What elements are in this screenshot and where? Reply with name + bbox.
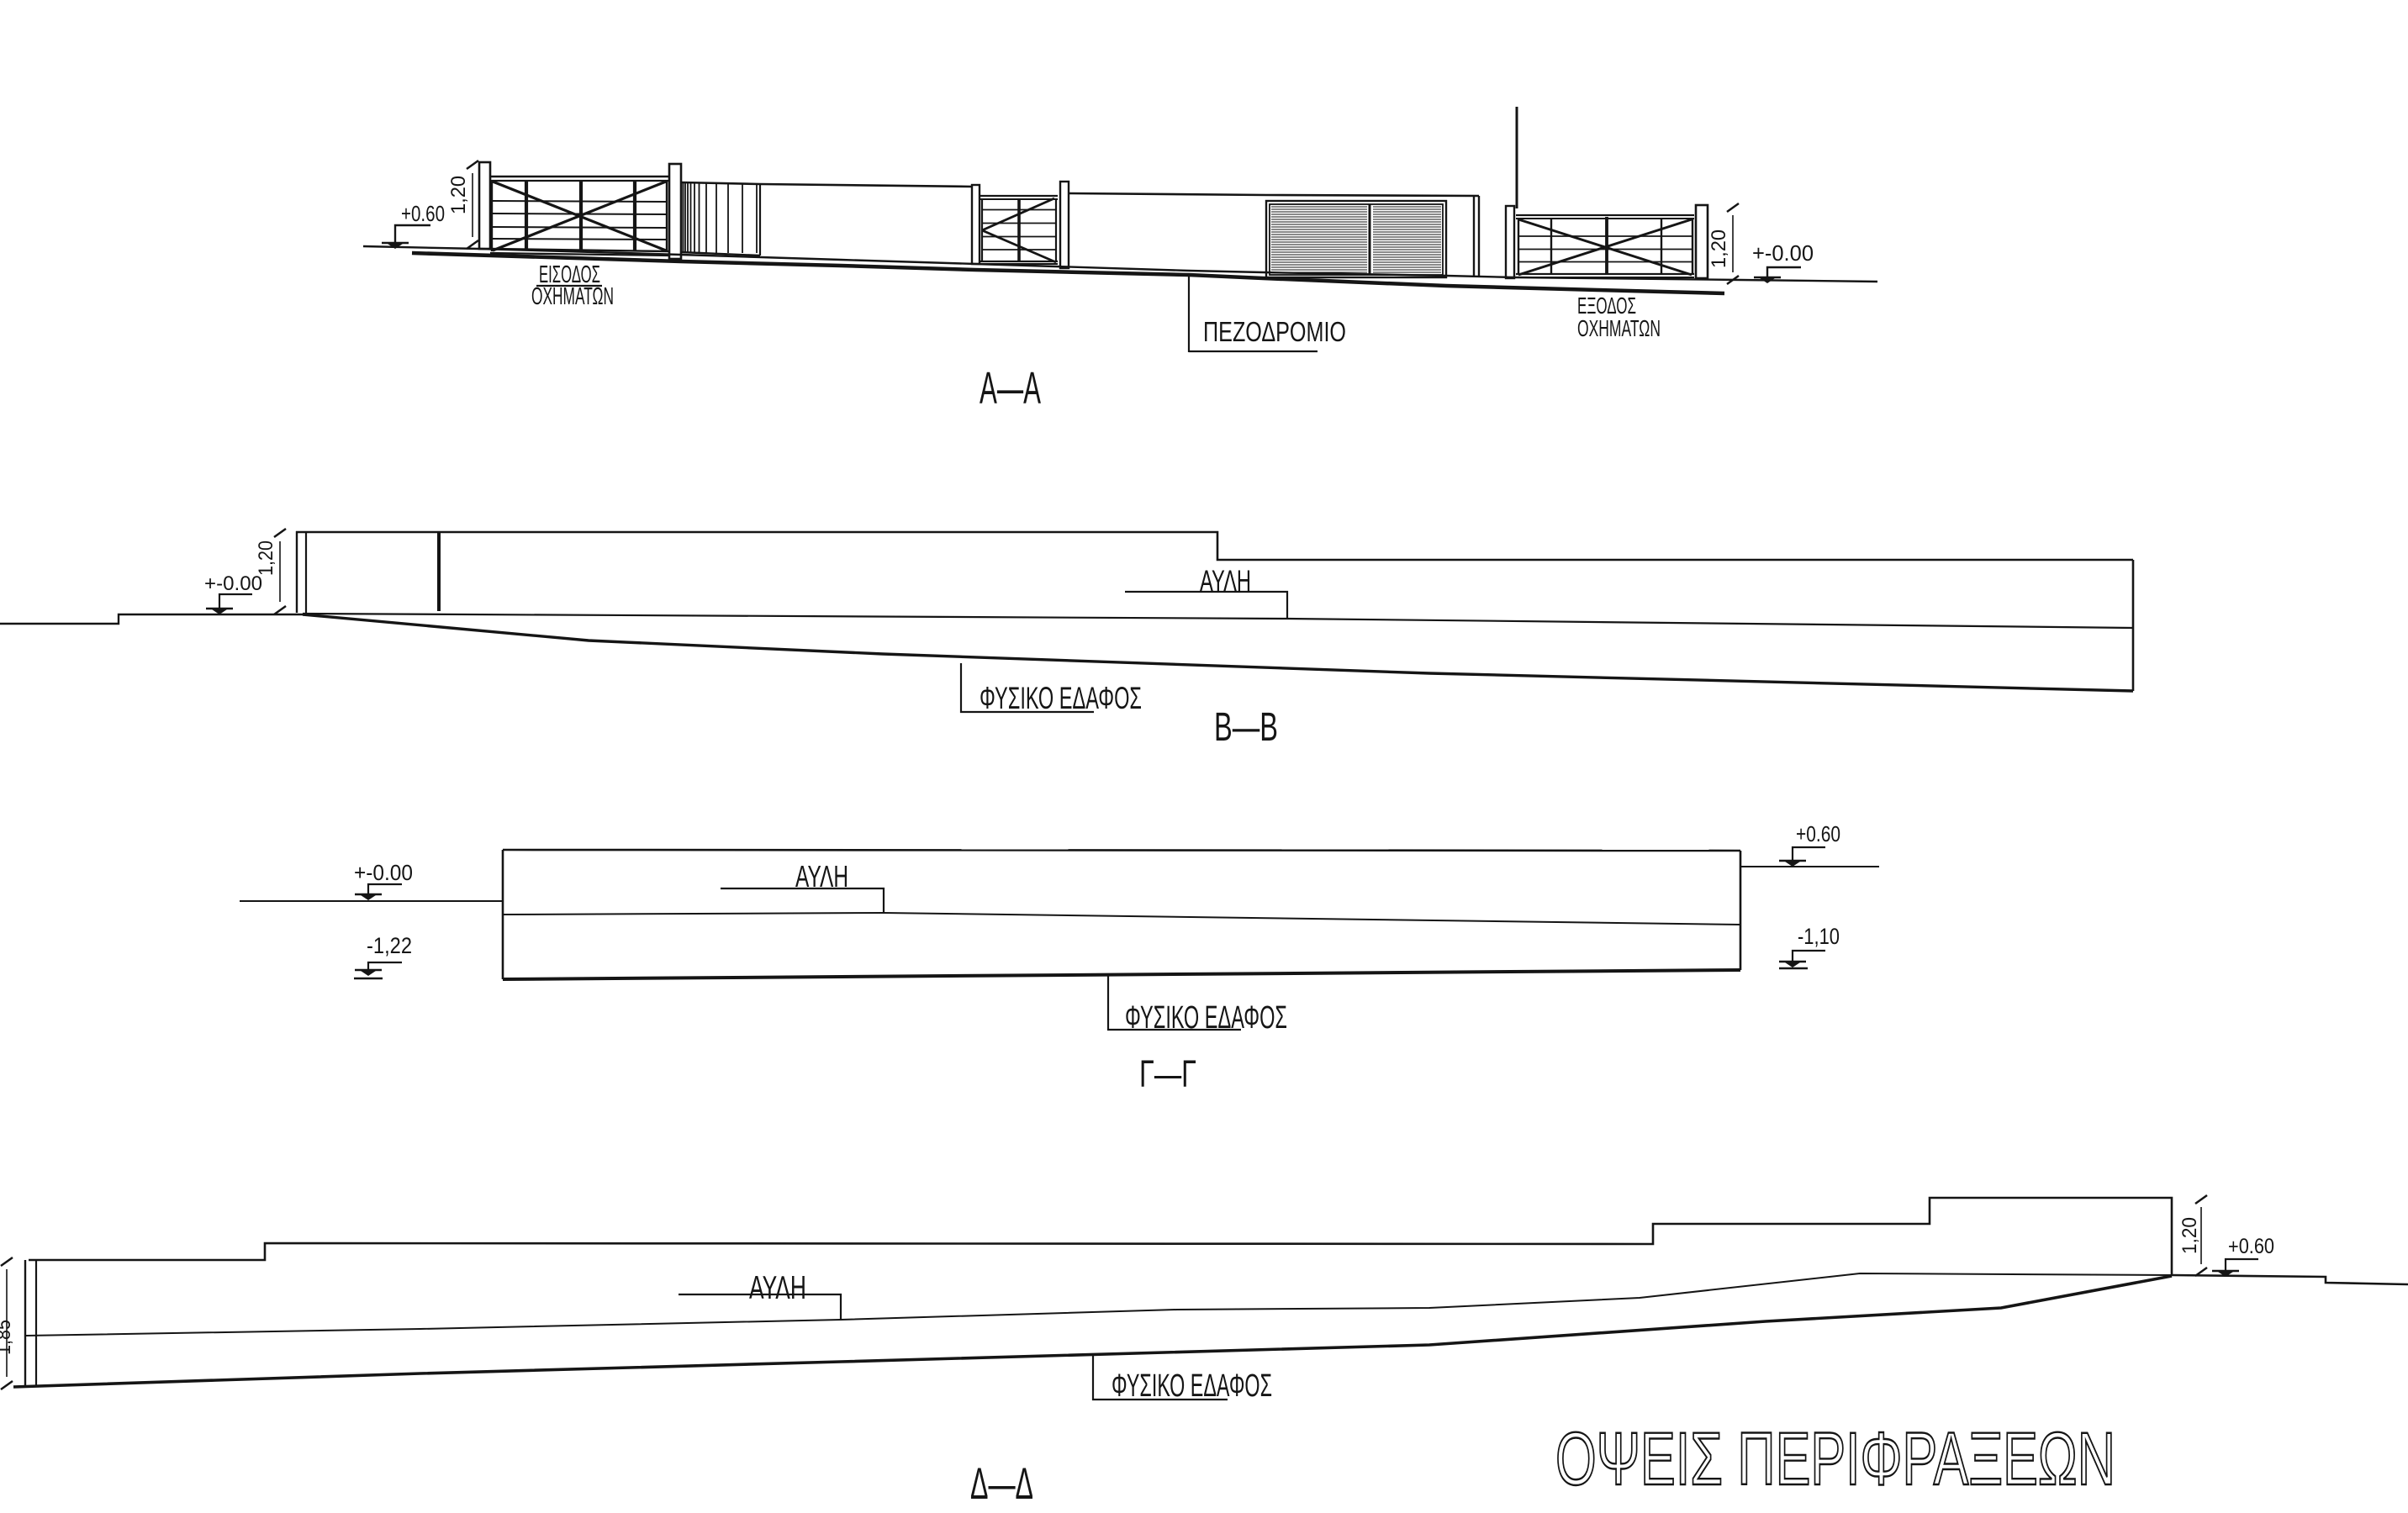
svg-text:ΦΥΣΙΚΟ ΕΔΑΦΟΣ: ΦΥΣΙΚΟ ΕΔΑΦΟΣ bbox=[980, 681, 1142, 715]
svg-text:Δ—Δ: Δ—Δ bbox=[970, 1459, 1033, 1509]
svg-text:-1,10: -1,10 bbox=[1798, 924, 1840, 949]
svg-text:ΑΥΛΗ: ΑΥΛΗ bbox=[1200, 565, 1251, 598]
svg-text:+0.60: +0.60 bbox=[401, 201, 445, 226]
svg-text:ΦΥΣΙΚΟ ΕΔΑΦΟΣ: ΦΥΣΙΚΟ ΕΔΑΦΟΣ bbox=[1112, 1368, 1272, 1404]
svg-text:ΟΧΗΜΑΤΩΝ: ΟΧΗΜΑΤΩΝ bbox=[1577, 315, 1661, 341]
svg-text:1,20: 1,20 bbox=[2178, 1217, 2201, 1254]
svg-text:-1,22: -1,22 bbox=[367, 933, 412, 958]
svg-text:ΠΕΖΟΔΡΟΜΙΟ: ΠΕΖΟΔΡΟΜΙΟ bbox=[1203, 316, 1346, 347]
svg-text:1,20: 1,20 bbox=[447, 176, 470, 214]
svg-text:ΑΥΛΗ: ΑΥΛΗ bbox=[749, 1270, 806, 1306]
svg-text:1,85: 1,85 bbox=[0, 1320, 15, 1355]
svg-text:Γ—Γ: Γ—Γ bbox=[1139, 1052, 1196, 1095]
svg-text:B—B: B—B bbox=[1214, 705, 1278, 750]
svg-text:+0.60: +0.60 bbox=[1796, 821, 1840, 846]
svg-text:ΟΧΗΜΑΤΩΝ: ΟΧΗΜΑΤΩΝ bbox=[531, 283, 614, 310]
svg-text:+-0.00: +-0.00 bbox=[354, 860, 413, 885]
svg-text:ΦΥΣΙΚΟ ΕΔΑΦΟΣ: ΦΥΣΙΚΟ ΕΔΑΦΟΣ bbox=[1125, 1000, 1287, 1036]
svg-text:1,20: 1,20 bbox=[255, 540, 277, 576]
svg-text:ΟΨΕΙΣ ΠΕΡΙΦΡΑΞΕΩΝ: ΟΨΕΙΣ ΠΕΡΙΦΡΑΞΕΩΝ bbox=[1555, 1416, 2115, 1500]
svg-text:+-0.00: +-0.00 bbox=[204, 572, 262, 595]
svg-text:1,20: 1,20 bbox=[1708, 229, 1730, 268]
svg-text:+0.60: +0.60 bbox=[2228, 1235, 2274, 1258]
svg-text:A—A: A—A bbox=[980, 363, 1041, 414]
svg-text:+-0.00: +-0.00 bbox=[1752, 240, 1814, 266]
